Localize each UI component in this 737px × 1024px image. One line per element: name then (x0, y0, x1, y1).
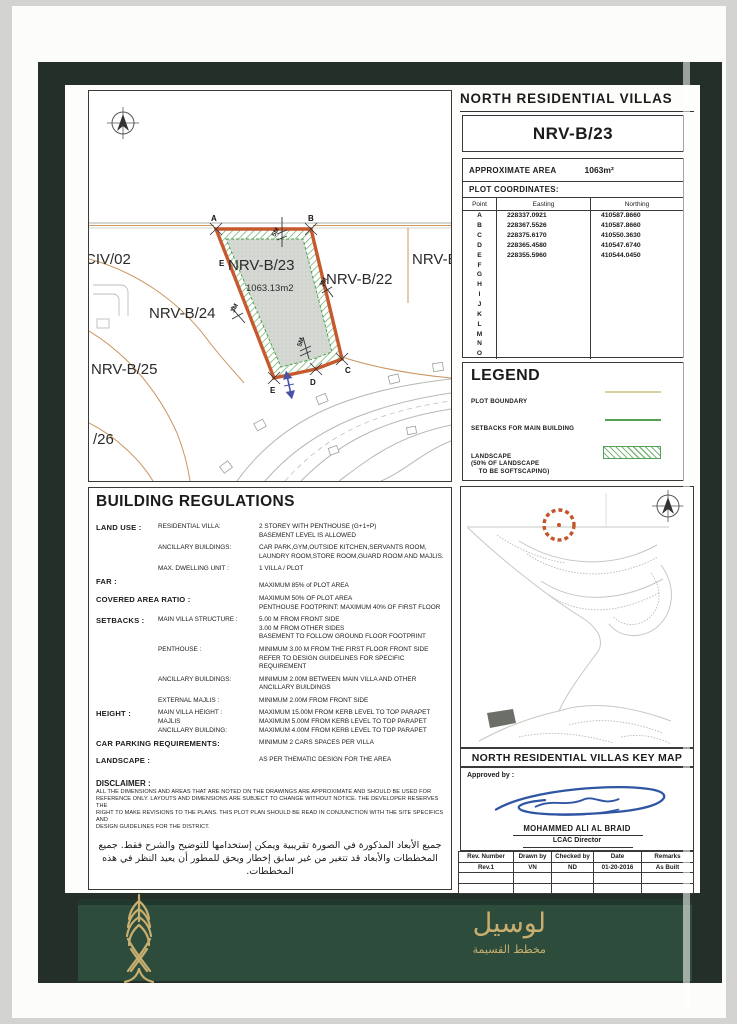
divider (513, 835, 643, 836)
legend-title: LEGEND (471, 367, 675, 385)
coord-easting (497, 270, 591, 280)
scan-fold-artifact (683, 58, 690, 1010)
revision-empty-row (459, 873, 693, 884)
coord-point: I (463, 290, 497, 300)
regulation-row: LANDSCAPE : AS PER THEMATIC DESIGN FOR T… (96, 756, 444, 765)
svg-text:3M: 3M (230, 303, 240, 314)
col-point: Point (463, 198, 497, 210)
reg-label: LAND USE : (96, 523, 154, 541)
key-map (460, 486, 694, 748)
table-row: K (463, 309, 683, 319)
regulation-row: CAR PARKING REQUIREMENTS: MINIMUM 2 CARS… (96, 739, 444, 748)
coord-easting (497, 280, 591, 290)
coord-point: D (463, 241, 497, 251)
coord-point: B (463, 221, 497, 231)
coord-easting (497, 349, 591, 359)
legend-box: LEGEND PLOT BOUNDARY SETBACKS FOR MAIN B… (462, 362, 684, 481)
reg-sub: MAIN VILLA HEIGHT : MAJLIS ANCILLARY BUI… (158, 709, 255, 735)
table-row: D228365.4580410547.6740 (463, 241, 683, 251)
reg-sub: MAX. DWELLING UNIT : (158, 565, 255, 574)
reg-value: MINIMUM 2.00M FROM FRONT SIDE (259, 697, 444, 706)
site-plan-drawing: 5M 3M 3M 5M CIV/02 NRV-B/23 1063.13m2 NR… (88, 90, 452, 482)
key-map-roads (467, 493, 671, 741)
table-row: G (463, 270, 683, 280)
plot-boundary-line-icon (605, 391, 661, 393)
revision-empty-row (459, 884, 693, 894)
coord-easting: 228365.4580 (497, 241, 591, 251)
landscape-hatch-icon (603, 446, 661, 459)
legend-label: PLOT BOUNDARY (471, 398, 527, 405)
table-row: A228337.0921410587.8660 (463, 211, 683, 221)
svg-text:D: D (310, 378, 316, 387)
coord-northing (591, 309, 683, 319)
coord-point: H (463, 280, 497, 290)
reg-sub: RESIDENTIAL VILLA: (158, 523, 255, 541)
approval-block: Approved by : MOHAMMED ALI AL BRAID LCAC… (460, 767, 694, 851)
document-title: NORTH RESIDENTIAL VILLAS (460, 91, 694, 112)
rev-col: Drawn by (514, 852, 552, 862)
coord-northing: 410550.3630 (591, 231, 683, 241)
legend-label: SETBACKS FOR MAIN BUILDING (471, 425, 574, 432)
reg-value: MINIMUM 2 CARS SPACES PER VILLA (259, 739, 444, 748)
coord-easting (497, 300, 591, 310)
coord-point: J (463, 300, 497, 310)
svg-text:CIV/02: CIV/02 (89, 251, 131, 268)
reg-sub: EXTERNAL MAJLIS : (158, 697, 255, 706)
coordinates-header: Point Easting Northing (463, 198, 683, 211)
reg-value: CAR PARK,GYM,OUTSIDE KITCHEN,SERVANTS RO… (259, 544, 444, 562)
regulation-row: COVERED AREA RATIO : MAXIMUM 50% OF PLOT… (96, 595, 444, 613)
plot-location-dot (557, 523, 561, 527)
coordinates-table-body: A228337.0921410587.8660B228367.552641058… (463, 211, 683, 359)
reg-label: HEIGHT : (96, 709, 154, 735)
rev-cell: VN (514, 863, 552, 873)
reg-label (96, 676, 154, 694)
reg-value: MINIMUM 3.00 M FROM THE FIRST FLOOR FRON… (259, 646, 444, 672)
approximate-area-row: APPROXIMATE AREA 1063m² (463, 159, 683, 182)
regulation-row: ANCILLARY BUILDINGS: MINIMUM 2.00M BETWE… (96, 676, 444, 694)
rev-cell: 01-20-2016 (594, 863, 642, 873)
svg-text:B: B (308, 214, 314, 223)
document-content: 5M 3M 3M 5M CIV/02 NRV-B/23 1063.13m2 NR… (38, 62, 722, 983)
revision-data-row: Rev.1 VN ND 01-20-2016 As Built (459, 863, 693, 874)
regulation-row: ANCILLARY BUILDINGS: CAR PARK,GYM,OUTSID… (96, 544, 444, 562)
reg-label (96, 544, 154, 562)
reg-label (96, 565, 154, 574)
svg-text:/26: /26 (93, 431, 114, 448)
coord-point: L (463, 319, 497, 329)
legend-item: LANDSCAPE (50% OF LANDSCAPE TO BE SOFTSC… (471, 445, 675, 483)
rev-col: Rev. Number (459, 852, 514, 862)
legend-item: SETBACKS FOR MAIN BUILDING (471, 418, 675, 441)
coord-easting (497, 319, 591, 329)
brand-wordmark-arabic: لوسيل (473, 909, 546, 939)
coord-northing (591, 339, 683, 349)
coord-easting: 228355.5960 (497, 250, 591, 260)
table-row: C228375.6170410550.3630 (463, 231, 683, 241)
regulation-row: FAR : MAXIMUM 85% of PLOT AREA (96, 577, 444, 591)
building-regulations: BUILDING REGULATIONS LAND USE : RESIDENT… (88, 487, 452, 890)
lusail-logo-icon (116, 891, 162, 994)
svg-text:NRV-B/22: NRV-B/22 (326, 271, 392, 288)
table-row: O (463, 349, 683, 359)
svg-text:E: E (270, 386, 276, 395)
area-label: APPROXIMATE AREA (469, 166, 556, 175)
coord-easting (497, 290, 591, 300)
coord-point: F (463, 260, 497, 270)
divider (523, 847, 633, 848)
coord-northing (591, 300, 683, 310)
regulation-row: LAND USE : RESIDENTIAL VILLA: 2 STOREY W… (96, 523, 444, 541)
reg-label: COVERED AREA RATIO : (96, 595, 255, 613)
regulations-title: BUILDING REGULATIONS (96, 493, 444, 511)
coord-northing (591, 270, 683, 280)
rev-col: Checked by (552, 852, 594, 862)
coord-northing (591, 329, 683, 339)
col-easting: Easting (497, 198, 591, 210)
coord-northing: 410587.8660 (591, 211, 683, 221)
coord-point: A (463, 211, 497, 221)
coord-northing: 410547.6740 (591, 241, 683, 251)
coord-northing (591, 280, 683, 290)
coord-northing (591, 349, 683, 359)
coord-point: M (463, 329, 497, 339)
rev-col: Date (594, 852, 642, 862)
revision-table: Rev. Number Drawn by Checked by Date Rem… (458, 851, 694, 894)
coord-northing (591, 319, 683, 329)
rev-cell: ND (552, 863, 594, 873)
regulation-row: EXTERNAL MAJLIS : MINIMUM 2.00M FROM FRO… (96, 697, 444, 706)
svg-text:1063.13m2: 1063.13m2 (246, 283, 294, 294)
site-plan-svg: 5M 3M 3M 5M CIV/02 NRV-B/23 1063.13m2 NR… (89, 91, 451, 481)
reg-value: AS PER THEMATIC DESIGN FOR THE AREA (259, 756, 444, 765)
revision-header-row: Rev. Number Drawn by Checked by Date Rem… (459, 852, 693, 863)
table-row: B228367.5526410587.8660 (463, 221, 683, 231)
reg-value: MINIMUM 2.00M BETWEEN MAIN VILLA AND OTH… (259, 676, 444, 694)
key-map-svg (461, 487, 693, 747)
coord-easting (497, 309, 591, 319)
reg-sub: ANCILLARY BUILDINGS: (158, 676, 255, 694)
disclaimer: DISCLAIMER : ALL THE DIMENSIONS AND AREA… (96, 779, 444, 878)
brand-subtitle-arabic: مخطط القسيمة (473, 943, 546, 956)
approver-name: MOHAMMED ALI AL BRAID (461, 824, 693, 833)
table-row: E228355.5960410544.0450 (463, 250, 683, 260)
coord-easting (497, 329, 591, 339)
plot-info-box: APPROXIMATE AREA 1063m² PLOT COORDINATES… (462, 158, 684, 358)
footer-brand: لوسيل مخطط القسيمة (473, 909, 546, 956)
coord-point: C (463, 231, 497, 241)
plot-number: NRV-B/23 (533, 124, 613, 144)
regulation-row: SETBACKS : MAIN VILLA STRUCTURE : 5.00 M… (96, 616, 444, 642)
reg-value: MAXIMUM 50% OF PLOT AREA PENTHOUSE FOOTP… (259, 595, 444, 613)
reg-sub: PENTHOUSE : (158, 646, 255, 672)
table-row: H (463, 280, 683, 290)
reg-sub (158, 577, 255, 591)
reg-label: CAR PARKING REQUIREMENTS: (96, 739, 255, 748)
svg-text:C: C (345, 366, 351, 375)
coord-northing: 410587.8660 (591, 221, 683, 231)
reg-value: 5.00 M FROM FRONT SIDE 3.00 M FROM OTHER… (259, 616, 444, 642)
coord-easting: 228337.0921 (497, 211, 591, 221)
area-value: 1063m² (584, 165, 613, 175)
svg-text:NRV-B/24: NRV-B/24 (149, 305, 215, 322)
plot-plan-page: 5M 3M 3M 5M CIV/02 NRV-B/23 1063.13m2 NR… (65, 85, 700, 893)
reg-sub: ANCILLARY BUILDINGS: (158, 544, 255, 562)
coord-easting (497, 260, 591, 270)
legend-item: PLOT BOUNDARY (471, 390, 675, 413)
svg-text:NRV-B: NRV-B (412, 251, 451, 268)
plot-number-box: NRV-B/23 (462, 115, 684, 152)
disclaimer-body: ALL THE DIMENSIONS AND AREAS THAT ARE NO… (96, 789, 444, 831)
coord-northing (591, 290, 683, 300)
table-row: F (463, 260, 683, 270)
svg-text:NRV-B/23: NRV-B/23 (228, 257, 294, 274)
table-row: I (463, 290, 683, 300)
reg-label (96, 646, 154, 672)
coord-point: E (463, 250, 497, 260)
key-map-title: NORTH RESIDENTIAL VILLAS KEY MAP (460, 748, 694, 767)
table-row: N (463, 339, 683, 349)
footer-band: لوسيل مخطط القسيمة (78, 899, 692, 981)
reg-value: MAXIMUM 85% of PLOT AREA (259, 577, 444, 591)
coord-point: O (463, 349, 497, 359)
svg-text:A: A (211, 214, 217, 223)
rev-cell: Rev.1 (459, 863, 514, 873)
reg-label (96, 697, 154, 706)
table-row: J (463, 300, 683, 310)
setback-line-icon (605, 419, 661, 421)
coord-easting: 228367.5526 (497, 221, 591, 231)
disclaimer-arabic: جميع الأبعاد المذكورة في الصورة تقريبية … (96, 839, 444, 878)
coord-point: K (463, 309, 497, 319)
reg-value: 2 STOREY WITH PENTHOUSE (G+1+P) BASEMENT… (259, 523, 444, 541)
approver-role: LCAC Director (461, 837, 693, 844)
reg-label: SETBACKS : (96, 616, 154, 642)
regulation-row: PENTHOUSE : MINIMUM 3.00 M FROM THE FIRS… (96, 646, 444, 672)
coordinates-title: PLOT COORDINATES: (463, 182, 683, 198)
col-northing: Northing (591, 198, 683, 210)
reg-label: FAR : (96, 577, 154, 591)
reg-value: 1 VILLA / PLOT (259, 565, 444, 574)
cul-de-sac (93, 285, 128, 328)
coord-easting (497, 339, 591, 349)
coord-northing: 410544.0450 (591, 250, 683, 260)
table-row: M (463, 329, 683, 339)
coord-point: N (463, 339, 497, 349)
coord-easting: 228375.6170 (497, 231, 591, 241)
disclaimer-title: DISCLAIMER : (96, 779, 444, 788)
reg-label: LANDSCAPE : (96, 756, 255, 765)
coord-point: G (463, 270, 497, 280)
svg-text:E: E (219, 259, 225, 268)
coord-northing (591, 260, 683, 270)
table-row: L (463, 319, 683, 329)
legend-label: LANDSCAPE (50% OF LANDSCAPE TO BE SOFTSC… (471, 453, 550, 475)
regulation-row: MAX. DWELLING UNIT : 1 VILLA / PLOT (96, 565, 444, 574)
reg-sub: MAIN VILLA STRUCTURE : (158, 616, 255, 642)
regulation-row: HEIGHT : MAIN VILLA HEIGHT : MAJLIS ANCI… (96, 709, 444, 735)
svg-text:NRV-B/25: NRV-B/25 (91, 361, 157, 378)
reg-value: MAXIMUM 15.00M FROM KERB LEVEL TO TOP PA… (259, 709, 444, 735)
